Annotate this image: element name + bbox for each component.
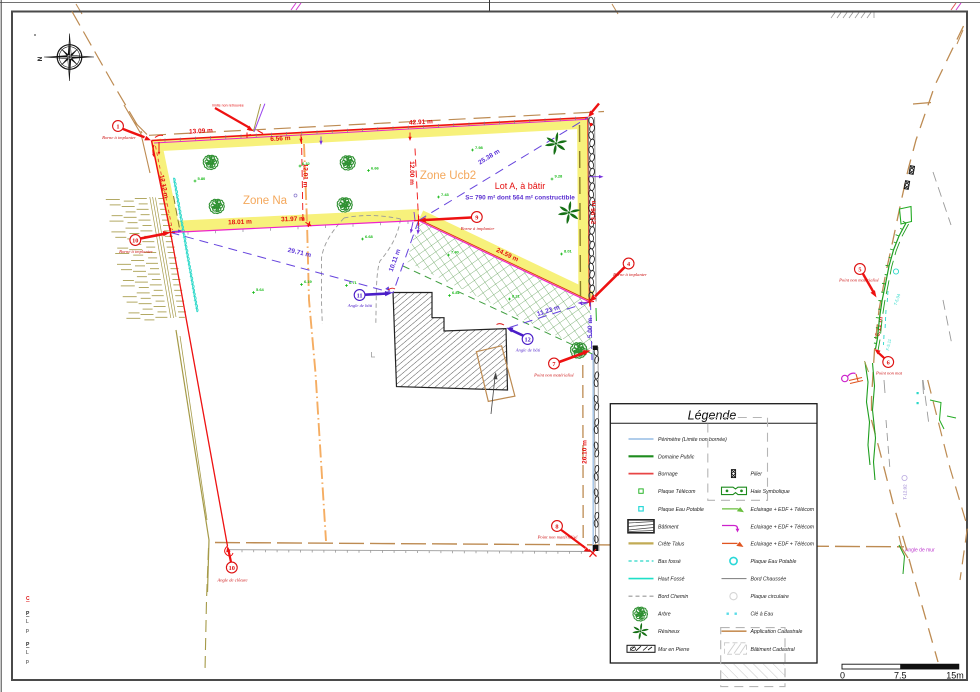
svg-text:12.01 m: 12.01 m	[302, 164, 309, 188]
svg-text:T-12.02: T-12.02	[903, 484, 908, 500]
svg-text:9: 9	[475, 214, 478, 221]
svg-text:Application Cadastrale: Application Cadastrale	[750, 629, 803, 635]
svg-text:6.81: 6.81	[452, 290, 461, 295]
svg-text:Borne à implanter: Borne à implanter	[102, 135, 136, 140]
svg-text:p: p	[26, 628, 29, 634]
svg-text:Borne à implanter: Borne à implanter	[461, 226, 495, 231]
svg-text:Clé à Eau: Clé à Eau	[751, 612, 774, 618]
svg-text:1: 1	[116, 123, 119, 130]
svg-text:Plaque Télécom: Plaque Télécom	[658, 489, 696, 495]
svg-text:Eclairage + EDF + Télécom: Eclairage + EDF + Télécom	[751, 507, 815, 513]
svg-text:23.96 m: 23.96 m	[590, 200, 597, 224]
svg-text:Eclairage + EDF + Télécom: Eclairage + EDF + Télécom	[751, 541, 815, 547]
svg-text:Lot A, à bâtir: Lot A, à bâtir	[495, 181, 546, 191]
svg-text:6.66: 6.66	[371, 166, 380, 171]
svg-text:6.68: 6.68	[365, 234, 374, 239]
svg-text:L: L	[26, 650, 29, 656]
svg-text:Borne à implanter: Borne à implanter	[613, 272, 647, 277]
svg-text:12.00 m: 12.00 m	[408, 161, 415, 185]
svg-text:p: p	[26, 659, 29, 665]
svg-text:Bornage: Bornage	[658, 472, 678, 478]
svg-text:Domaine Public: Domaine Public	[658, 454, 695, 460]
svg-text:6.19: 6.19	[304, 279, 313, 284]
svg-text:12: 12	[524, 336, 530, 343]
svg-text:Plaque Eau Potable: Plaque Eau Potable	[751, 559, 797, 565]
svg-text:6.32: 6.32	[302, 161, 311, 166]
svg-text:Eclairage + EDF + Télécom: Eclairage + EDF + Télécom	[751, 525, 815, 531]
svg-text:9.28: 9.28	[555, 174, 564, 179]
svg-text:7: 7	[552, 361, 555, 368]
svg-text:5: 5	[858, 266, 861, 273]
svg-text:5.64: 5.64	[256, 287, 265, 292]
svg-text:Bord Chemin: Bord Chemin	[658, 594, 688, 600]
svg-text:N: N	[37, 56, 44, 61]
svg-text:Périmètre (Limite non bornée): Périmètre (Limite non bornée)	[658, 437, 727, 443]
svg-text:Angle de bâti: Angle de bâti	[515, 348, 541, 353]
svg-text:C: C	[26, 596, 30, 602]
svg-text:Crête Talus: Crête Talus	[658, 541, 685, 547]
svg-text:13.09 m: 13.09 m	[189, 127, 213, 135]
svg-text:Zone Na: Zone Na	[243, 195, 288, 207]
svg-text:31.97 m: 31.97 m	[281, 216, 305, 224]
svg-text:limite non retrouvée: limite non retrouvée	[212, 104, 244, 108]
svg-text:6: 6	[887, 359, 890, 366]
svg-text:8.01: 8.01	[564, 249, 573, 254]
svg-text:10: 10	[229, 565, 235, 572]
svg-text:Arbre: Arbre	[657, 612, 671, 618]
svg-text:Angle de mur: Angle de mur	[905, 548, 935, 554]
svg-text:Point non matérialisé: Point non matérialisé	[537, 535, 579, 540]
svg-text:Haie Symbolique: Haie Symbolique	[751, 489, 790, 495]
svg-text:Légende: Légende	[688, 409, 737, 423]
svg-text:Plaque Eau Potable: Plaque Eau Potable	[658, 507, 704, 513]
svg-text:S= 790 m² dont 564 m² construc: S= 790 m² dont 564 m² constructible	[465, 195, 575, 202]
svg-text:7.43: 7.43	[441, 192, 450, 197]
svg-text:26.10 m: 26.10 m	[582, 440, 589, 464]
svg-text:6.71: 6.71	[349, 280, 358, 285]
svg-text:Mur en Pierre: Mur en Pierre	[658, 647, 690, 653]
svg-text:Bâtiment: Bâtiment	[658, 525, 679, 531]
svg-text:Plaque circulaire: Plaque circulaire	[751, 594, 789, 600]
svg-text:Point non matérialisé: Point non matérialisé	[533, 372, 575, 377]
svg-text:5.00 m: 5.00 m	[587, 318, 594, 338]
svg-text:10: 10	[132, 237, 138, 244]
svg-text:7.5: 7.5	[894, 671, 907, 681]
svg-text:Bas fossé: Bas fossé	[658, 559, 681, 565]
svg-text:15m: 15m	[946, 671, 964, 681]
svg-text:7.40: 7.40	[451, 250, 460, 255]
svg-text:0: 0	[840, 671, 845, 681]
svg-text:Zone Ucb2: Zone Ucb2	[420, 170, 476, 182]
svg-text:42.91 m: 42.91 m	[409, 118, 433, 126]
svg-text:7.98: 7.98	[475, 145, 484, 150]
svg-text:Bâtiment Cadastral: Bâtiment Cadastral	[751, 647, 796, 653]
svg-text:5.80: 5.80	[198, 176, 207, 181]
svg-text:18.01 m: 18.01 m	[228, 219, 252, 227]
svg-text:6.56 m: 6.56 m	[270, 135, 291, 143]
svg-text:Angle de bâti: Angle de bâti	[347, 303, 373, 308]
svg-text:Bord Chaussée: Bord Chaussée	[751, 577, 787, 583]
svg-text:8.21: 8.21	[512, 294, 521, 299]
svg-text:Point non mat: Point non mat	[875, 371, 903, 376]
svg-text:L: L	[26, 619, 29, 625]
svg-text:Pilier: Pilier	[751, 472, 763, 478]
svg-text:Haut Fossé: Haut Fossé	[658, 577, 685, 583]
svg-text:Résineux: Résineux	[658, 629, 680, 635]
svg-text:Borne à implanter: Borne à implanter	[119, 249, 153, 254]
svg-text:Angle de clôture: Angle de clôture	[216, 577, 247, 582]
svg-text:8: 8	[555, 523, 558, 530]
svg-text:11: 11	[357, 292, 363, 299]
svg-text:Point non matérialisé: Point non matérialisé	[838, 278, 880, 283]
